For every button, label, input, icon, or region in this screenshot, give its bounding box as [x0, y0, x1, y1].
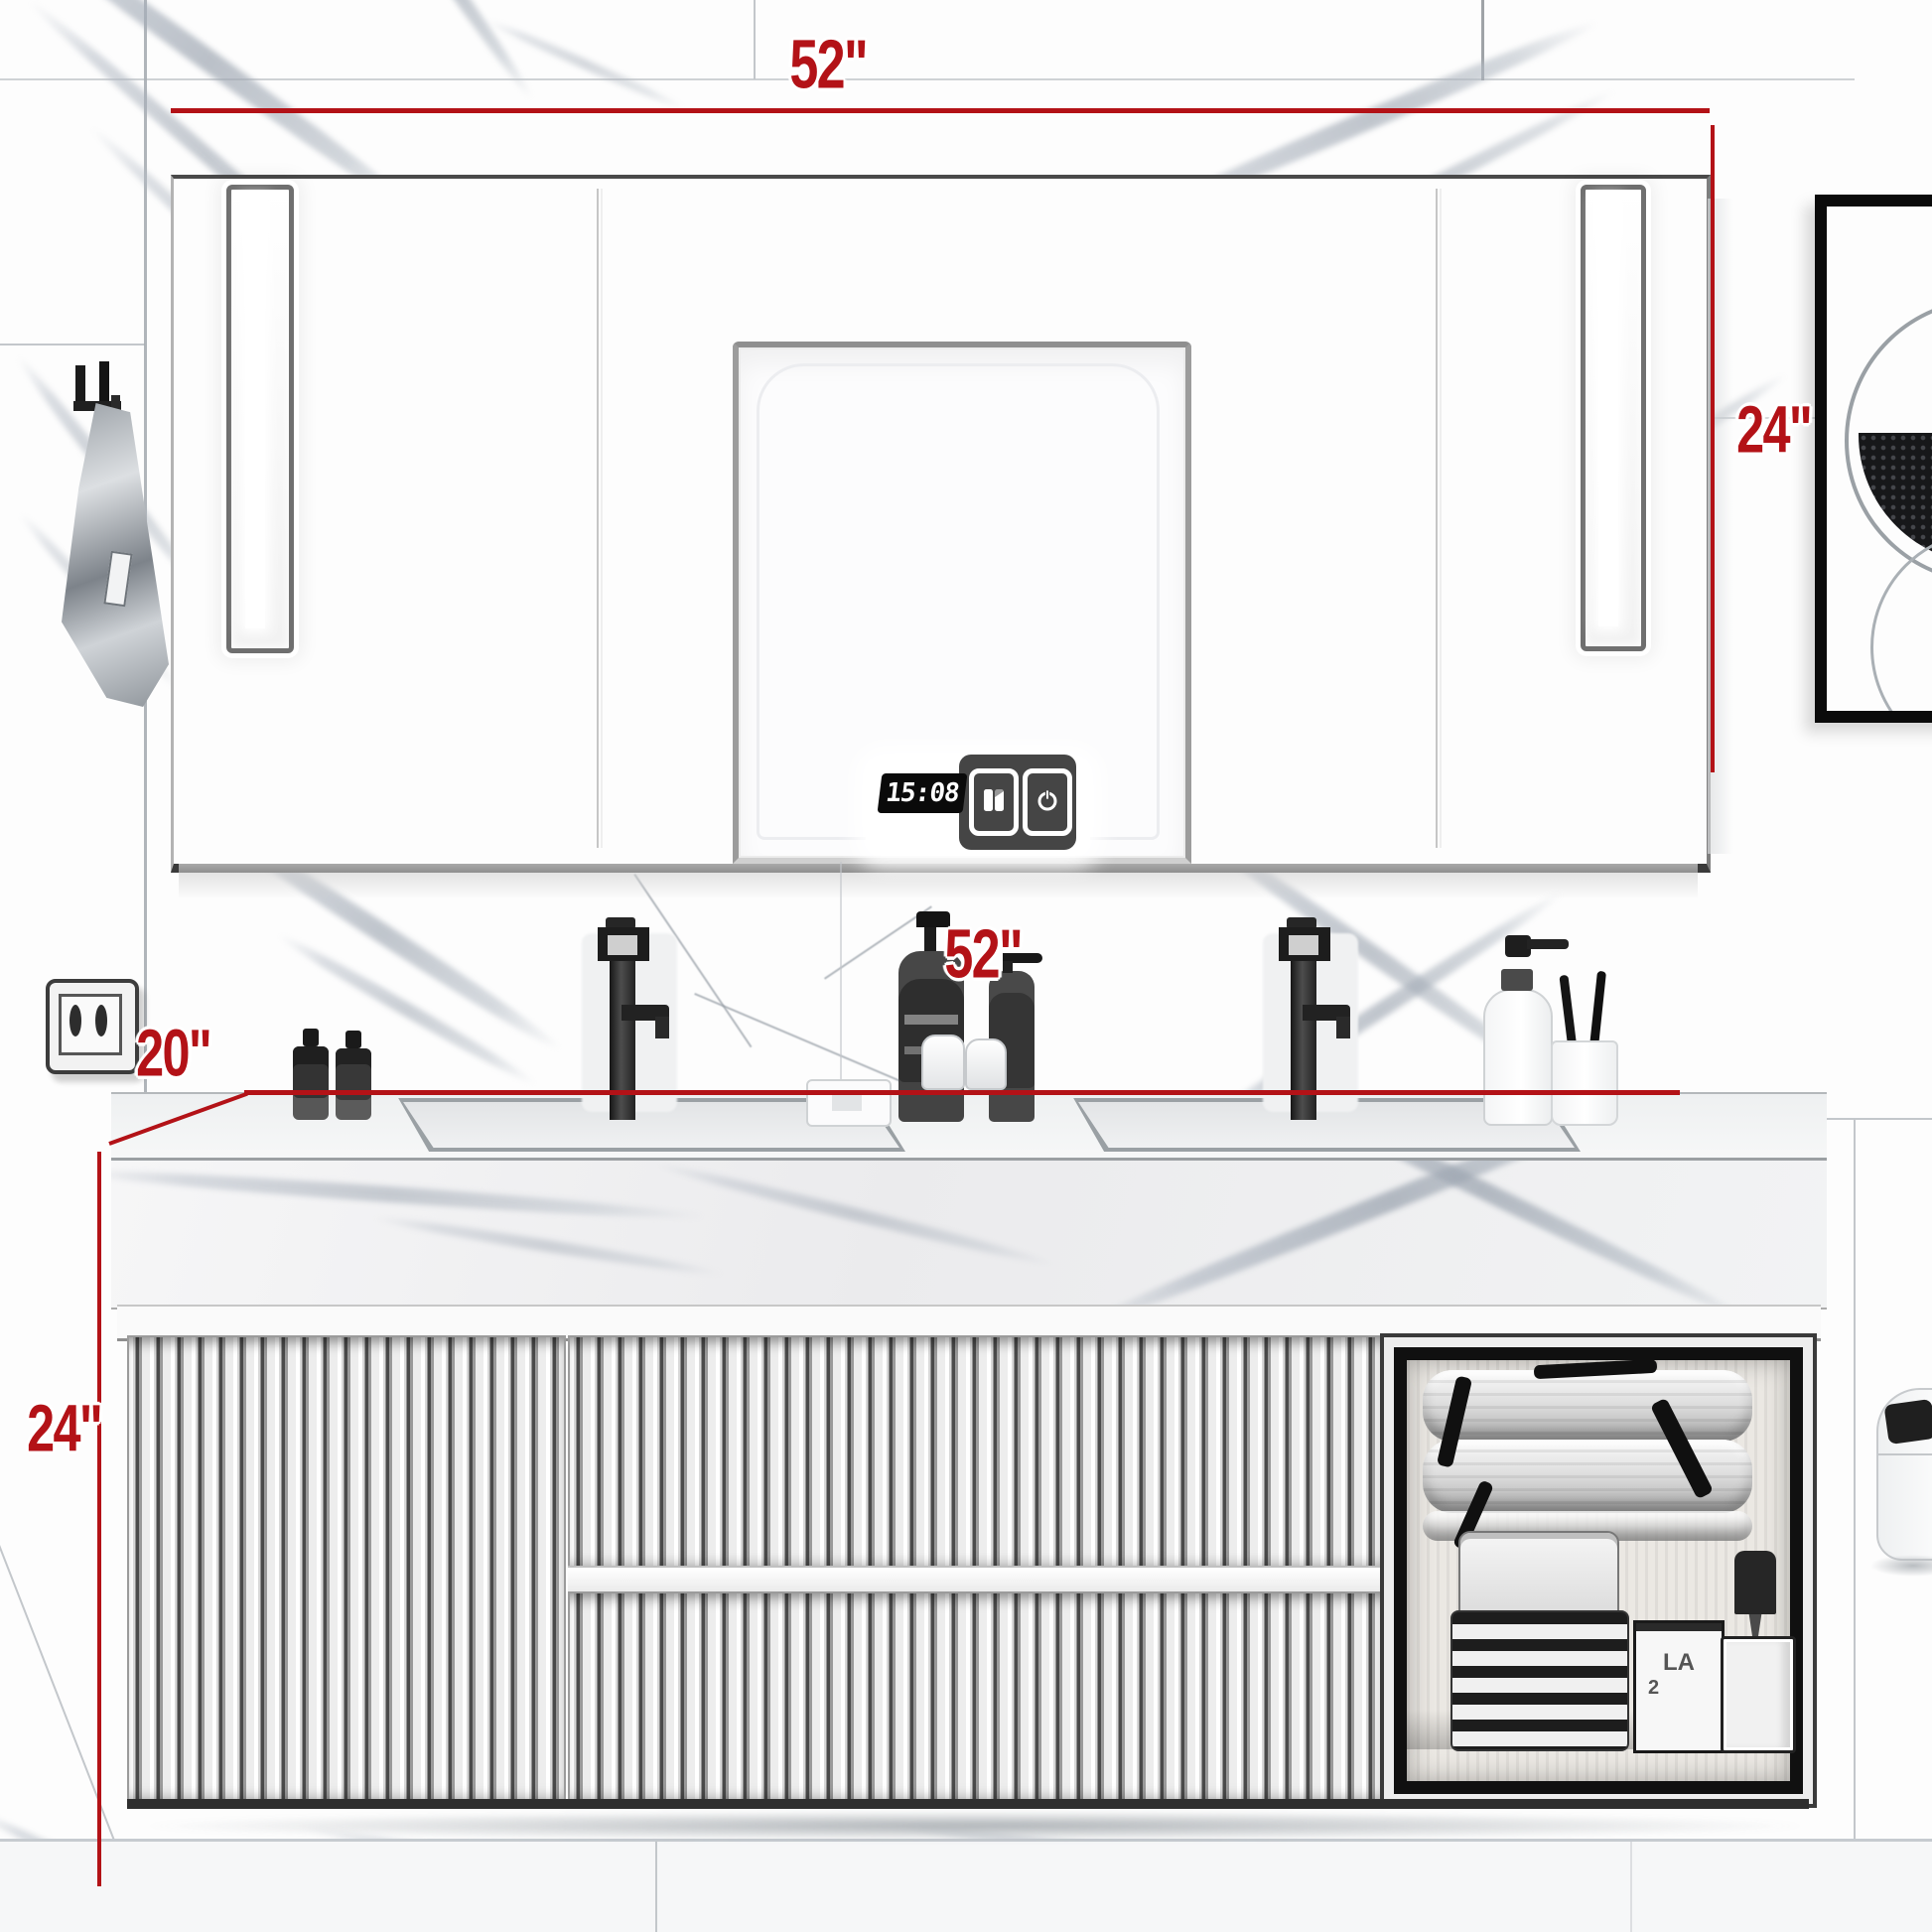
floor-seam-vertical-2 — [1630, 1842, 1632, 1932]
towel-texture — [1423, 1370, 1752, 1442]
floor — [0, 1839, 1932, 1932]
artwork-ring-2 — [1870, 530, 1932, 723]
faucet-handle-block — [1279, 927, 1330, 961]
dispenser-collar — [1501, 969, 1533, 991]
faucet-handle-inner — [608, 935, 637, 955]
bottle-band — [904, 1015, 958, 1025]
dropper-bottle-body — [1721, 1636, 1796, 1753]
cosmetic-bottle-small — [336, 1048, 371, 1120]
outlet-inner-frame — [59, 994, 122, 1055]
marble-vein — [370, 1212, 725, 1280]
power-outlet — [46, 979, 139, 1074]
dim-label-mirror-width: 52" — [789, 26, 867, 105]
marble-vein — [483, 16, 687, 114]
power-button — [1023, 768, 1072, 836]
power-icon — [1035, 785, 1059, 820]
cabinet-under-shadow — [179, 864, 1698, 899]
wall-seam-vertical-1 — [754, 0, 756, 79]
shaving-brush — [965, 1038, 1007, 1090]
marble-vein — [652, 1158, 1060, 1271]
fluted-drawer-top — [568, 1335, 1384, 1570]
marble-vein — [1075, 1158, 1709, 1310]
faucet-handle-block — [598, 927, 649, 961]
clock-display: 15:08 — [878, 773, 968, 813]
dim-line-counter-width — [244, 1090, 1680, 1095]
wall-corner-right — [1854, 1120, 1856, 1841]
wall-seam-right-horizontal — [1823, 1118, 1932, 1120]
toilet-tank — [1876, 1388, 1932, 1561]
toilet-flush-handle — [1883, 1399, 1932, 1445]
niche-inner-frame: LA 2 — [1394, 1347, 1803, 1794]
mirror-door-seam-left — [597, 189, 599, 848]
ribbed-jar-top — [1458, 1531, 1619, 1616]
vanity-bottom-rail — [127, 1799, 1809, 1809]
faucet-column — [610, 961, 635, 1120]
faucet-spout-tip — [655, 1017, 669, 1038]
dim-label-counter-depth: 20" — [136, 1015, 210, 1091]
dropper-pipette — [1746, 1614, 1764, 1638]
marble-vein — [111, 1165, 707, 1225]
toilet-shadow — [1870, 1555, 1932, 1577]
box-label-line1: LA — [1636, 1649, 1722, 1677]
toothbrush-cup — [1551, 1040, 1618, 1126]
led-strip-glow — [245, 200, 265, 628]
open-shelf-niche: LA 2 — [1380, 1333, 1817, 1808]
bottle-cap — [303, 1029, 319, 1046]
faucet-spout-tip — [1336, 1017, 1350, 1038]
fluted-drawer-bottom — [568, 1591, 1384, 1803]
outlet-socket-hole — [69, 1005, 81, 1036]
marble-vein — [355, 0, 538, 103]
countertop-marble-fascia — [111, 1158, 1827, 1310]
shaving-brush — [921, 1035, 965, 1090]
pump-stem — [924, 925, 936, 951]
toilet-lid-seam — [1878, 1453, 1932, 1455]
defog-icon — [982, 785, 1006, 820]
box-label-line2: 2 — [1636, 1677, 1722, 1700]
mirror-door-seam-right — [1436, 189, 1438, 848]
bottle-cap — [345, 1031, 361, 1048]
outlet-socket-hole — [95, 1005, 107, 1036]
white-jar — [806, 1079, 892, 1127]
labeled-box: LA 2 — [1633, 1620, 1725, 1753]
bathroom-vanity-illustration: 15:08 — [0, 0, 1932, 1932]
dropper-bottle-cap — [1734, 1551, 1776, 1614]
wall-seam-left-horizontal — [0, 344, 145, 345]
jar-label — [832, 1095, 862, 1111]
vanity-floor-shadow — [139, 1811, 1811, 1841]
ribbed-jar-body — [1450, 1610, 1629, 1751]
floor-seam-vertical-1 — [655, 1842, 657, 1932]
dim-label-mirror-height: 24" — [1736, 391, 1811, 468]
towel-roll — [1423, 1370, 1752, 1442]
dim-label-counter-width: 52" — [944, 915, 1022, 995]
faucet-handle-inner — [1289, 935, 1318, 955]
faucet-column — [1291, 961, 1316, 1120]
led-strip-right — [1581, 185, 1646, 651]
dispenser-pump-spout — [1527, 939, 1569, 949]
led-strip-left — [226, 185, 294, 653]
wall-artwork-frame — [1815, 195, 1932, 723]
led-strip-glow — [1598, 200, 1618, 626]
dim-line-vanity-height — [97, 1152, 101, 1886]
fluted-door-left — [127, 1335, 566, 1803]
touch-button-panel — [959, 755, 1076, 850]
dim-label-vanity-height: 24" — [27, 1390, 101, 1466]
dim-line-mirror-width — [171, 108, 1710, 113]
wall-seam-horizontal-top — [0, 78, 1855, 80]
soap-dispenser — [1483, 989, 1553, 1126]
cosmetic-bottle-small — [293, 1046, 329, 1120]
backsplash-seam — [840, 862, 842, 1092]
dim-line-mirror-height — [1711, 125, 1715, 772]
defog-button — [969, 768, 1019, 836]
